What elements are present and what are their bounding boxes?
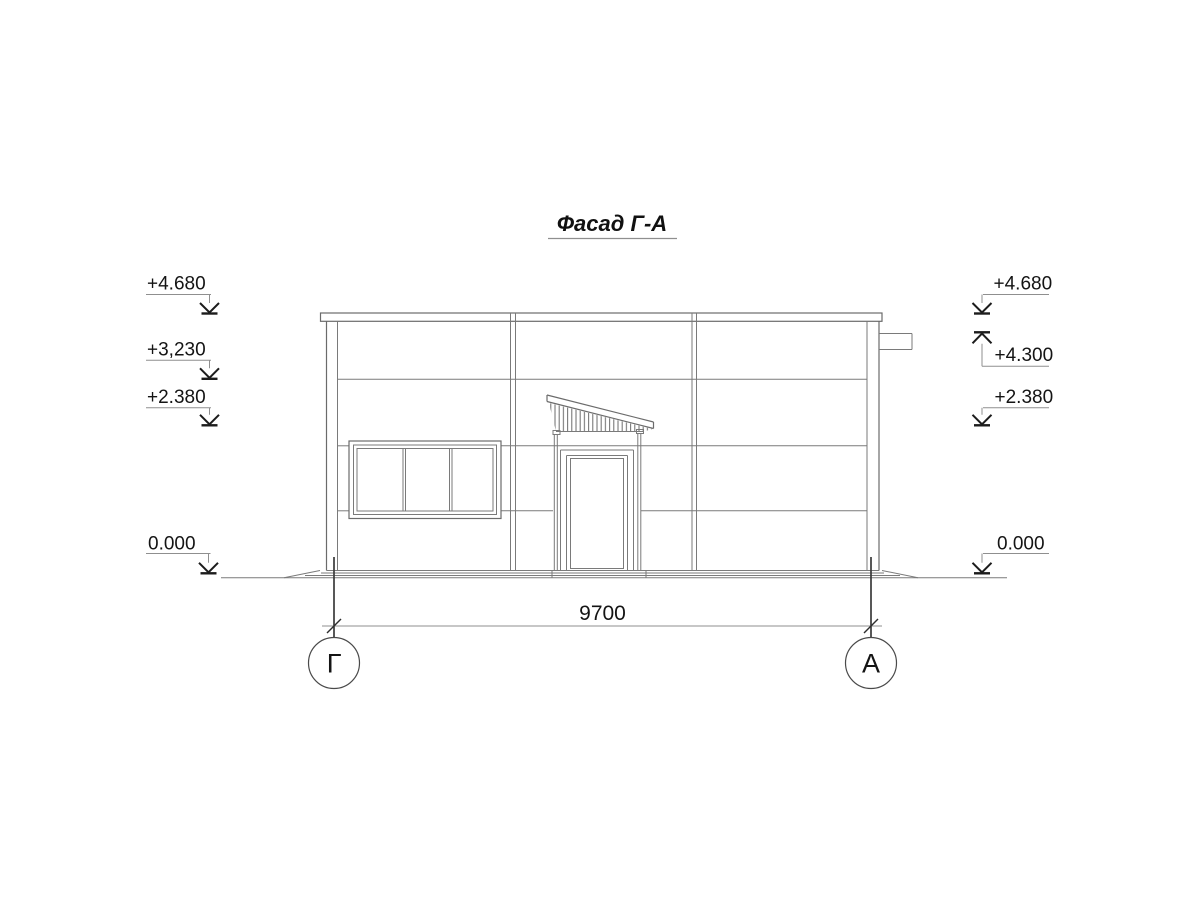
elevation-value: +2.380 <box>995 387 1054 408</box>
elevation-value: +4.680 <box>994 274 1053 295</box>
axis-label-right: А <box>862 649 880 679</box>
elevation-marks-right: +4.680 +4.300 +2.380 0.000 <box>973 274 1054 574</box>
elevation-arrow-down-icon <box>200 415 219 425</box>
dimension-and-axes: 9700 Г А <box>309 557 897 689</box>
entrance <box>547 395 654 571</box>
elevation-arrow-down-icon <box>199 563 218 573</box>
elevation-value: 0.000 <box>148 534 196 555</box>
dimension-value: 9700 <box>579 602 626 625</box>
facade-drawing: Фасад Г-А <box>0 0 1200 900</box>
page-title: Фасад Г-А <box>557 211 667 236</box>
door-leaf <box>571 459 624 569</box>
axis-label-left: Г <box>327 649 342 679</box>
elevation-mark: +2.380 <box>146 387 219 425</box>
title-block: Фасад Г-А <box>548 211 677 239</box>
elevation-mark: +3,230 <box>146 340 219 379</box>
elevation-value: +3,230 <box>147 340 206 361</box>
axis-bubble-right: А <box>846 638 897 689</box>
building-facade <box>321 313 913 571</box>
elevation-arrow-down-icon <box>973 415 992 425</box>
blind-area-slope-left <box>284 571 320 578</box>
entrance-canopy <box>547 395 654 432</box>
elevation-marks-left: +4.680 +3,230 +2.380 0.000 <box>146 274 219 574</box>
blind-area-slope-right <box>882 571 918 578</box>
elevation-mark: +4.680 <box>973 274 1053 314</box>
canopy-post-left <box>553 431 560 571</box>
canopy-post-right <box>637 430 644 571</box>
elevation-arrow-down-icon <box>200 368 219 378</box>
entrance-porch <box>552 571 646 578</box>
elevation-mark: +4.300 <box>973 332 1054 366</box>
elevation-value: +2.380 <box>147 387 206 408</box>
elevation-mark: 0.000 <box>146 534 218 574</box>
window-mullions <box>403 449 452 512</box>
window <box>349 441 501 519</box>
elevation-mark: +4.680 <box>146 274 219 314</box>
door <box>561 450 634 571</box>
elevation-mark: +2.380 <box>973 387 1054 425</box>
ground-lines <box>221 571 1007 578</box>
elevation-value: +4.680 <box>147 274 206 295</box>
parapet-coping <box>321 313 883 321</box>
elevation-arrow-down-icon <box>973 303 992 313</box>
elevation-value: +4.300 <box>995 345 1054 366</box>
elevation-value: 0.000 <box>997 534 1045 555</box>
elevation-arrow-down-icon <box>200 303 219 313</box>
elevation-arrow-down-icon <box>973 563 992 573</box>
elevation-arrow-up-icon <box>973 334 992 344</box>
axis-bubble-left: Г <box>309 638 360 689</box>
elevation-mark: 0.000 <box>973 534 1050 574</box>
drain-scupper <box>879 334 912 350</box>
